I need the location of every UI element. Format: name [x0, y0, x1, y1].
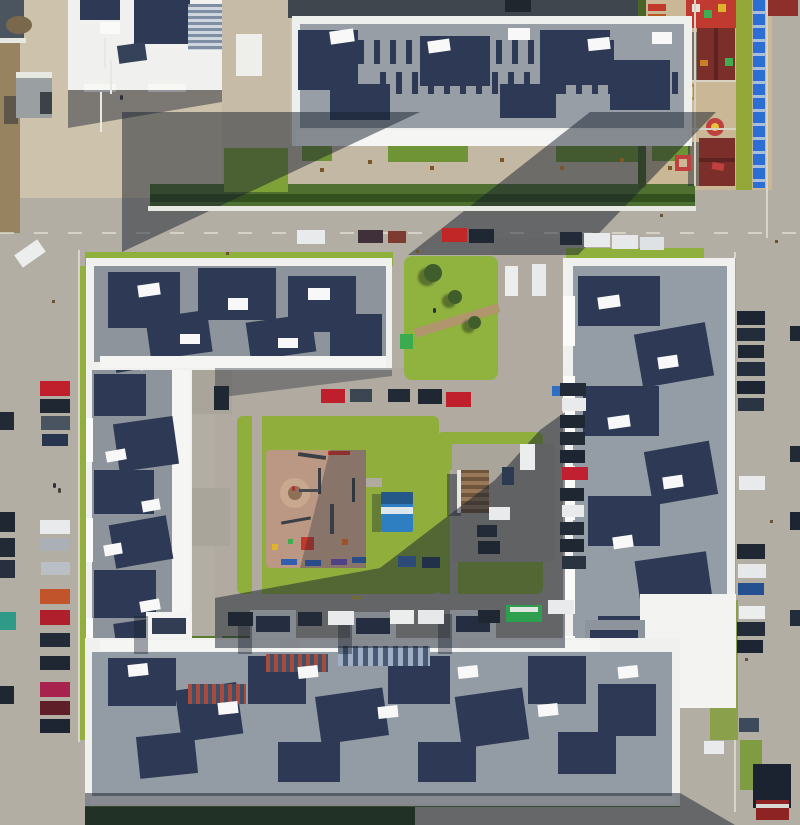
parked-car [790, 610, 800, 626]
roof-shadow [94, 374, 146, 416]
tower-roof-shadow [152, 618, 186, 634]
parked-car [520, 444, 535, 470]
aerial-photo [0, 0, 800, 825]
parked-car [350, 389, 372, 402]
parked-car [214, 386, 229, 410]
tree-pit [6, 16, 32, 34]
parked-car [390, 610, 414, 624]
kg-hedge-right [736, 0, 752, 190]
roof-shadow [145, 310, 212, 360]
parapet [563, 296, 575, 346]
roof-box [508, 28, 530, 40]
parked-car [560, 522, 584, 535]
parked-car [738, 564, 766, 578]
parked-car [40, 538, 69, 551]
roof-box [278, 338, 298, 348]
facade-windows [188, 4, 222, 50]
roof-box [217, 701, 238, 715]
flagpole [100, 92, 102, 132]
person [433, 308, 436, 313]
court-stripe [381, 507, 413, 514]
lamp-dot [368, 160, 372, 164]
roof-units [380, 72, 560, 94]
canopy-ridge [699, 158, 735, 162]
parked-car [297, 230, 325, 244]
road-speck [745, 658, 748, 661]
parked-car [502, 467, 514, 485]
lamp-dot [430, 166, 434, 170]
parking-pocket [188, 488, 230, 546]
path [366, 478, 382, 487]
parked-car [40, 381, 70, 396]
parked-car [548, 600, 574, 614]
roof-units [560, 72, 680, 94]
parked-car [584, 233, 610, 247]
parked-car [737, 640, 763, 653]
parked-car [737, 328, 765, 341]
parked-car [328, 611, 354, 625]
person [53, 483, 56, 488]
parked-car [40, 701, 70, 715]
flagpole [110, 60, 112, 94]
parked-car [40, 589, 70, 604]
bench-red [648, 4, 666, 11]
south-facade [100, 356, 386, 368]
lamp-dot [620, 158, 624, 162]
parked-car [0, 512, 15, 532]
climbing-frame [299, 489, 319, 492]
parked-car [560, 383, 586, 396]
roof-shadow [278, 742, 340, 782]
parked-car [398, 556, 416, 567]
parked-car [358, 230, 383, 243]
pavilion-small-door [40, 92, 52, 114]
parked-car [640, 237, 664, 250]
parked-car [739, 606, 765, 619]
parked-car [738, 398, 764, 411]
white-van [489, 507, 510, 520]
roof-box [228, 298, 248, 310]
parked-car [562, 398, 586, 411]
canopy-ridge [714, 26, 718, 80]
parked-car [41, 562, 70, 575]
parked-car [41, 416, 70, 430]
roof-box [377, 705, 398, 719]
road-speck [775, 240, 778, 243]
roof-box [537, 703, 558, 717]
parked-car [0, 686, 14, 704]
parked-car [505, 0, 531, 12]
truck-trailer [756, 800, 789, 820]
toy-green [725, 58, 733, 66]
dumpster-green [400, 334, 413, 349]
roof-box [297, 665, 318, 679]
parked-car [562, 505, 584, 517]
lamp-dot [500, 158, 504, 162]
sedum-roof [388, 146, 468, 162]
roof-box [100, 22, 120, 34]
parked-car [560, 450, 585, 463]
parapet [86, 418, 93, 462]
bin-blue [552, 386, 560, 396]
roof-shadow [418, 742, 476, 782]
fence-line [694, 0, 696, 186]
parked-car [737, 622, 765, 636]
parked-car [0, 412, 14, 430]
parked-car [738, 345, 764, 358]
tree [448, 290, 462, 304]
parked-car [0, 560, 15, 578]
roof-box [127, 663, 148, 677]
parked-car [0, 538, 15, 557]
lamp-dot [560, 166, 564, 170]
roof-box [587, 37, 610, 51]
parked-car [422, 557, 440, 568]
parked-car [560, 415, 585, 428]
roof-shadow [583, 386, 659, 436]
parked-car [446, 392, 471, 407]
truck-stripe [756, 804, 789, 808]
roof-box [457, 665, 478, 679]
play-dot [718, 4, 726, 12]
red-roof-corner [768, 0, 798, 16]
roof-shadow [136, 731, 198, 779]
parked-car [790, 512, 800, 530]
entry-road [492, 238, 562, 372]
parked-car [42, 434, 68, 446]
parked-car [739, 718, 759, 732]
road-speck [226, 252, 229, 255]
parked-car [478, 541, 500, 554]
parked-car [790, 446, 800, 462]
roof-box [308, 288, 330, 300]
parked-car [737, 544, 765, 559]
flagpole [104, 38, 106, 68]
roof-shadow [117, 42, 147, 64]
parked-car [298, 612, 322, 626]
parked-car [469, 229, 494, 243]
roof-shadow [598, 684, 656, 736]
play-dot [704, 10, 712, 18]
parked-car [790, 326, 800, 341]
person [58, 488, 61, 493]
white-fence [148, 206, 696, 211]
tree [424, 264, 442, 282]
parked-car [388, 231, 406, 243]
road-speck [416, 250, 419, 253]
parked-car [739, 476, 765, 490]
cast-shadow-tower [134, 616, 148, 654]
roof-shadow [198, 268, 276, 320]
roof-shadow [113, 416, 179, 472]
parked-car [562, 467, 588, 480]
roof-shadow [455, 688, 530, 749]
court-shade [381, 492, 413, 504]
green-van-top [510, 607, 538, 612]
pavilion-small-frame [16, 72, 52, 78]
parked-car [40, 399, 70, 413]
parked-car [40, 610, 70, 625]
parked-car [560, 539, 584, 552]
parked-car [560, 232, 582, 245]
parked-car [560, 432, 585, 445]
court-shadow [372, 494, 381, 532]
parked-car [40, 633, 70, 647]
road-speck [770, 520, 773, 523]
parked-car [388, 389, 410, 402]
roof-box [180, 334, 200, 344]
roof-shadow [134, 0, 190, 44]
roof-shadow [558, 732, 616, 774]
tree [468, 316, 481, 329]
sandbox-inner [679, 159, 687, 167]
parked-car [478, 610, 500, 623]
parapet [86, 518, 93, 562]
parked-car [228, 612, 253, 626]
roof-box [652, 32, 672, 44]
parked-car [0, 612, 16, 630]
parked-car [40, 520, 70, 534]
white-van [505, 266, 518, 296]
road-speck [52, 300, 55, 303]
roof-shadow [528, 656, 586, 704]
parked-car [418, 610, 444, 624]
bench [281, 559, 297, 565]
parked-car [562, 556, 586, 569]
parked-car [737, 362, 765, 376]
roof-shadow [80, 0, 120, 20]
play-item [288, 539, 293, 544]
blue-fence [753, 0, 765, 188]
path [252, 416, 262, 594]
roof-shadow [330, 314, 382, 356]
parked-car [40, 682, 70, 697]
parked-car [40, 656, 70, 670]
parked-car [560, 488, 584, 501]
parked-car [737, 311, 765, 325]
curb [766, 0, 768, 238]
parked-car [738, 583, 764, 595]
parked-car [612, 235, 638, 249]
roof-box [617, 665, 638, 679]
road-speck [660, 214, 663, 217]
play-item [272, 544, 278, 550]
parked-car [442, 228, 467, 242]
white-van [532, 264, 546, 296]
lamp-dot [320, 168, 324, 172]
toy-orange [700, 60, 708, 66]
parked-car [704, 741, 724, 754]
parked-car [40, 719, 70, 733]
person [120, 95, 123, 100]
parked-car [418, 389, 442, 404]
parked-car [737, 381, 765, 394]
stairs [236, 34, 262, 76]
lamp-dot [668, 166, 672, 170]
parked-car [321, 389, 345, 403]
parked-car [477, 525, 497, 537]
person [292, 486, 295, 491]
